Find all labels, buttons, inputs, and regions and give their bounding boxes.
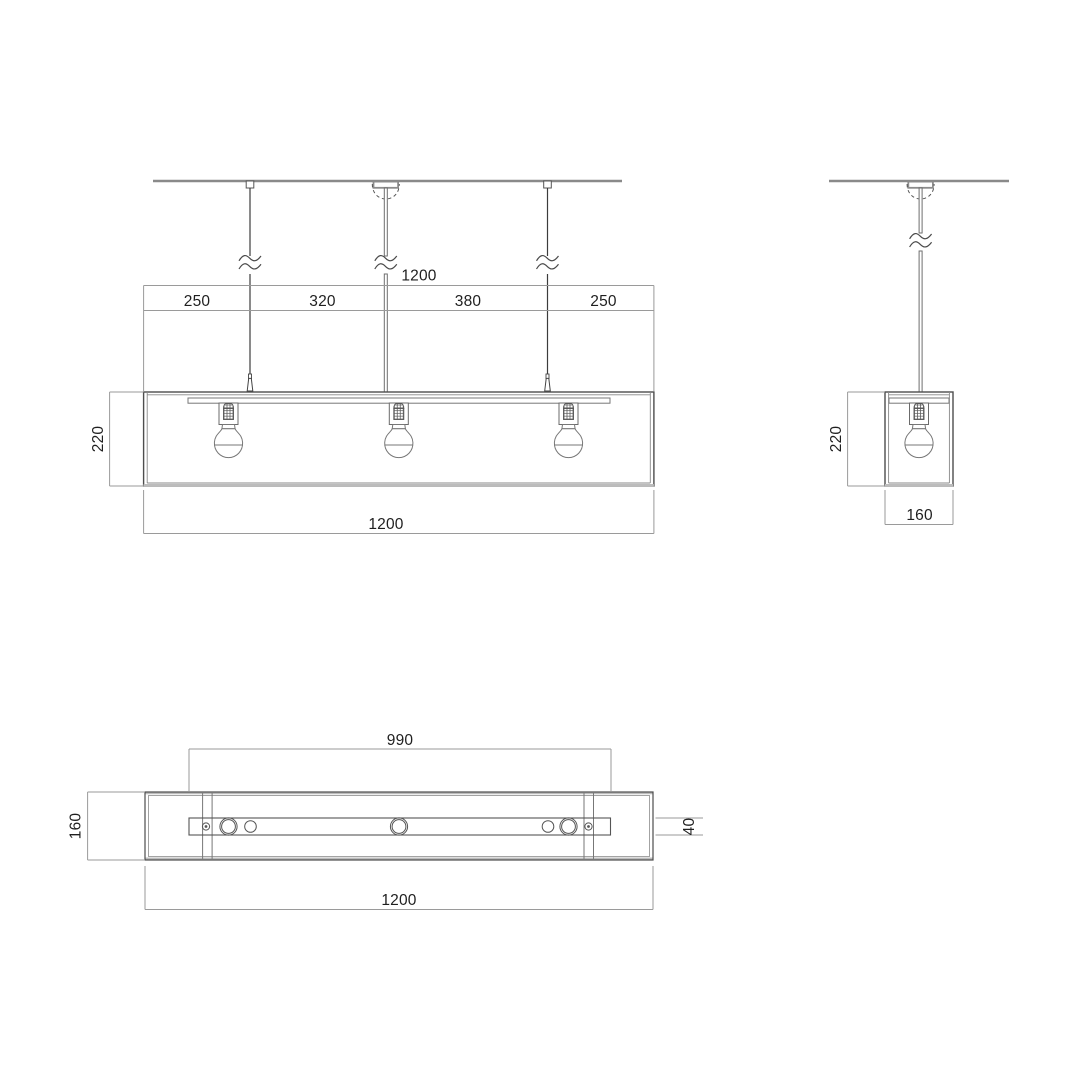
dim-width-side: 160 xyxy=(906,507,933,524)
dim-overall-bottom: 1200 xyxy=(368,516,403,533)
plate-holes xyxy=(202,818,592,835)
dimension-height-bracket xyxy=(110,392,144,486)
dim-segment-3: 380 xyxy=(455,293,482,310)
drawing-svg: 1200 250 320 380 250 220 xyxy=(0,0,1080,1080)
dim-segment-1: 250 xyxy=(184,293,211,310)
cable-break-icon xyxy=(537,256,559,269)
cross-battens xyxy=(203,793,594,859)
dimension-lines-top xyxy=(144,286,654,392)
dim-plate-length: 990 xyxy=(387,732,414,749)
fixture-frame-inner xyxy=(149,796,650,857)
cord-gland-icon xyxy=(247,374,253,391)
dim-depth-plan: 160 xyxy=(67,813,84,840)
dimension-height-bracket-side xyxy=(848,392,885,486)
dimension-plate-length xyxy=(189,749,611,791)
cable-break-icon xyxy=(239,256,261,269)
suspension-rod-side xyxy=(919,188,922,392)
ceiling-hook-icon xyxy=(246,181,254,188)
front-view: 1200 250 320 380 250 220 xyxy=(90,181,654,534)
dim-height-side: 220 xyxy=(828,426,845,453)
side-view: 220 160 xyxy=(828,181,1009,525)
mounting-plate-side xyxy=(889,398,949,403)
dim-segment-2: 320 xyxy=(309,293,336,310)
dim-overall-plan: 1200 xyxy=(381,892,416,909)
dimension-depth-bracket xyxy=(88,792,145,860)
dim-plate-width: 40 xyxy=(681,818,698,836)
dim-segment-4: 250 xyxy=(590,293,617,310)
plan-view: 990 160 40 1200 xyxy=(67,732,703,910)
dim-height-front: 220 xyxy=(90,426,107,453)
cable-break-icon xyxy=(375,256,397,269)
suspension-rod-center xyxy=(384,188,387,392)
ceiling-hook-icon xyxy=(544,181,552,188)
cable-break-icon xyxy=(910,234,932,247)
technical-drawing-canvas: 1200 250 320 380 250 220 xyxy=(0,0,1080,1080)
cord-gland-icon xyxy=(545,374,551,391)
mounting-plate-front xyxy=(188,398,610,403)
dim-overall-top: 1200 xyxy=(401,268,436,285)
